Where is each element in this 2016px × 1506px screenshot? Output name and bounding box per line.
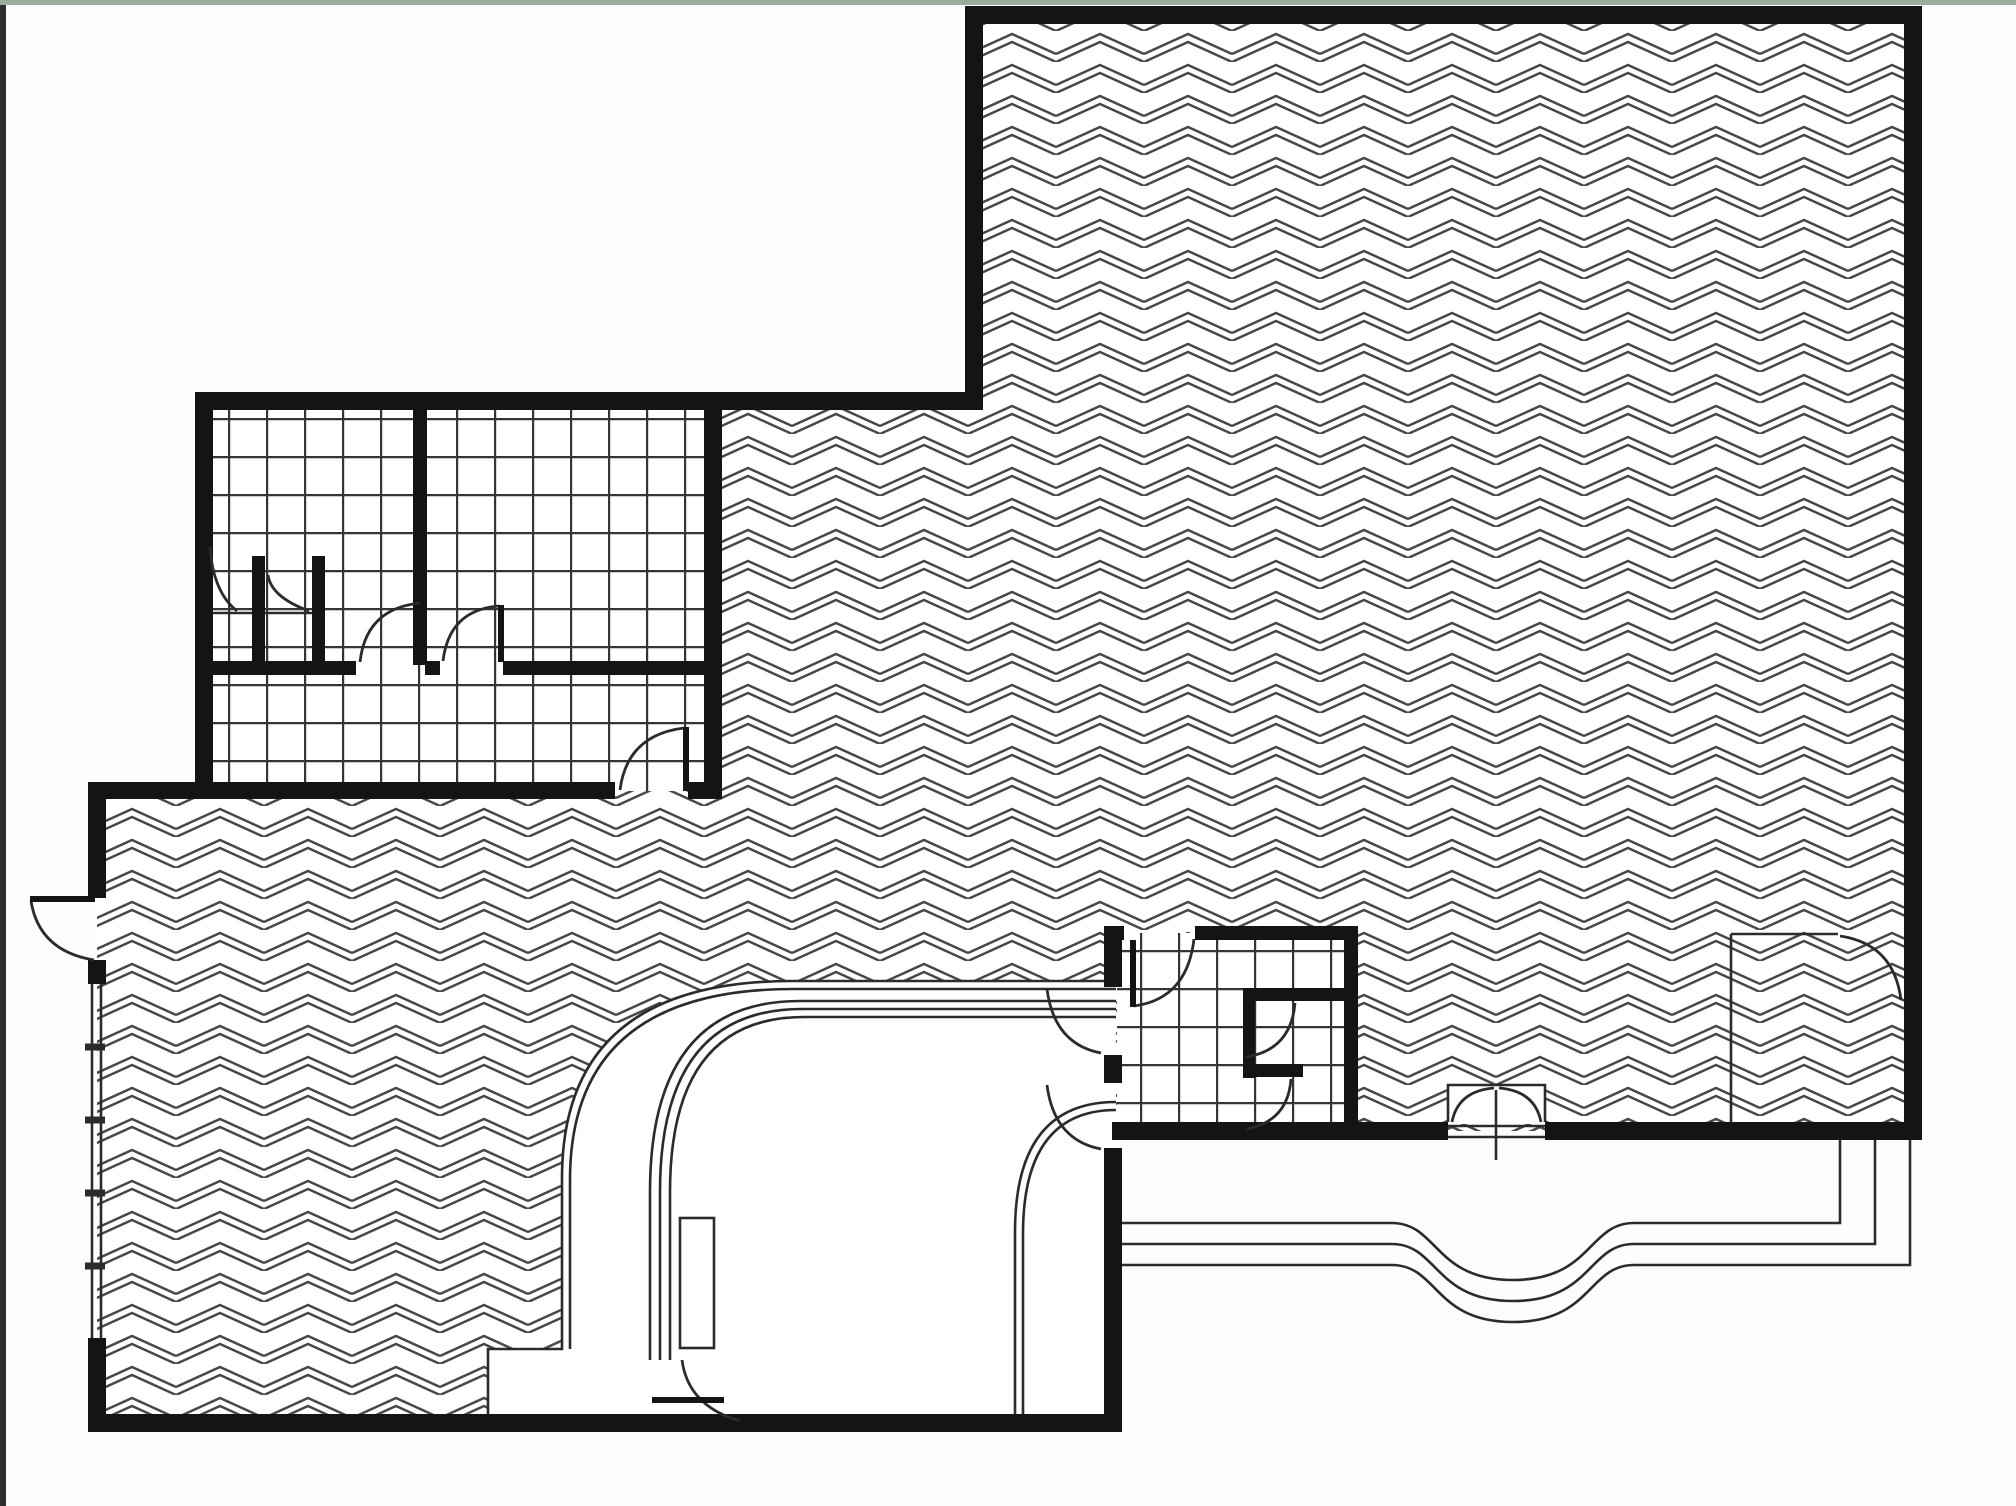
- wall-lobby-right-b: [1104, 1055, 1122, 1083]
- wall-stall-e-top: [1243, 988, 1350, 1001]
- wall-restrooms-top: [195, 392, 983, 410]
- wall-stall-e-bottom: [1243, 1064, 1303, 1077]
- wall-se-room-top-b: [1195, 926, 1358, 940]
- wall-right: [1904, 6, 1922, 1140]
- wall-west-horiz-a: [88, 782, 615, 799]
- left-edge-bar: [0, 5, 6, 1506]
- wall-lobby-right-lower: [1104, 1148, 1122, 1432]
- door-leaf-band-open: [680, 1218, 714, 1348]
- top-edge-bar: [0, 0, 2016, 5]
- wall-restroom-mid-c: [503, 661, 704, 675]
- wall-restrooms-left: [195, 392, 213, 799]
- wall-restroom-mid-a: [204, 661, 356, 675]
- wall-main-left: [965, 6, 983, 410]
- wall-top: [965, 6, 1922, 24]
- restroom-south-east: [1117, 933, 1344, 1123]
- stall-partition-1: [252, 556, 265, 663]
- wall-restrooms-right: [704, 401, 722, 791]
- wall-bottom-right-b: [1545, 1122, 1922, 1140]
- wall-bottom: [88, 1414, 1122, 1432]
- stall-partition-2: [312, 556, 325, 663]
- wall-bottom-right-a: [1112, 1122, 1448, 1140]
- wall-restroom-mid-b: [425, 661, 440, 675]
- wall-left-ext-upper: [88, 782, 106, 898]
- wall-lobby-right-a: [1104, 926, 1122, 987]
- wall-se-room-right: [1344, 926, 1358, 1123]
- wall-left-ext-mid: [88, 960, 106, 984]
- floor-plan-drawing: [0, 0, 2016, 1506]
- floor-plan-screenshot: [0, 0, 2016, 1506]
